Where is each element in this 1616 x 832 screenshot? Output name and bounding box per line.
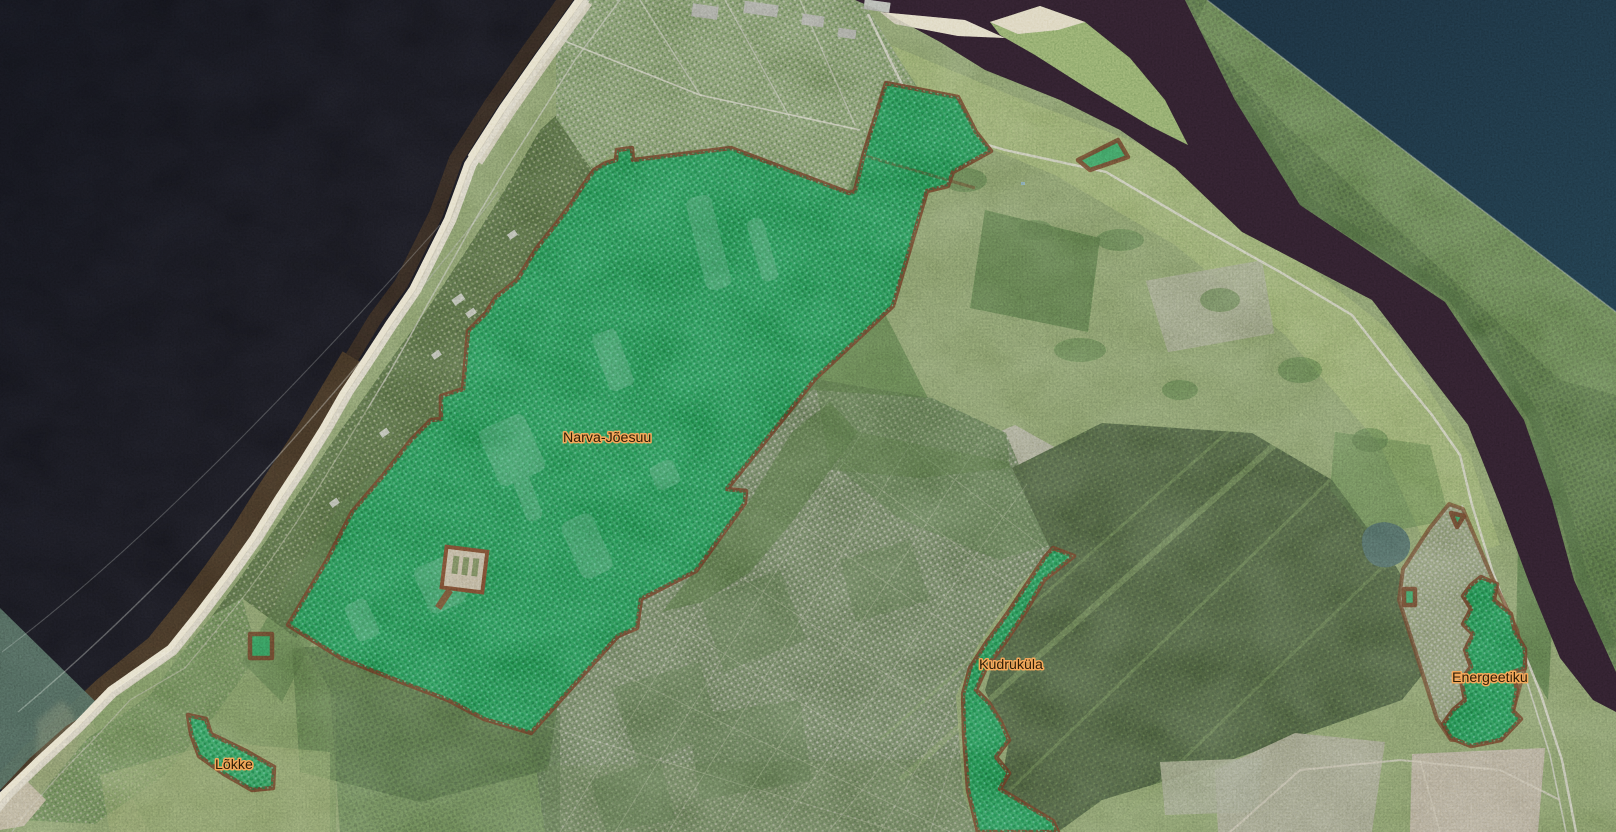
- svg-text:Kudruküla: Kudruküla: [979, 657, 1043, 673]
- svg-text:Energeetiku: Energeetiku: [1452, 670, 1528, 686]
- svg-text:Narva-Jõesuu: Narva-Jõesuu: [563, 430, 651, 446]
- svg-text:Lõkke: Lõkke: [215, 757, 253, 773]
